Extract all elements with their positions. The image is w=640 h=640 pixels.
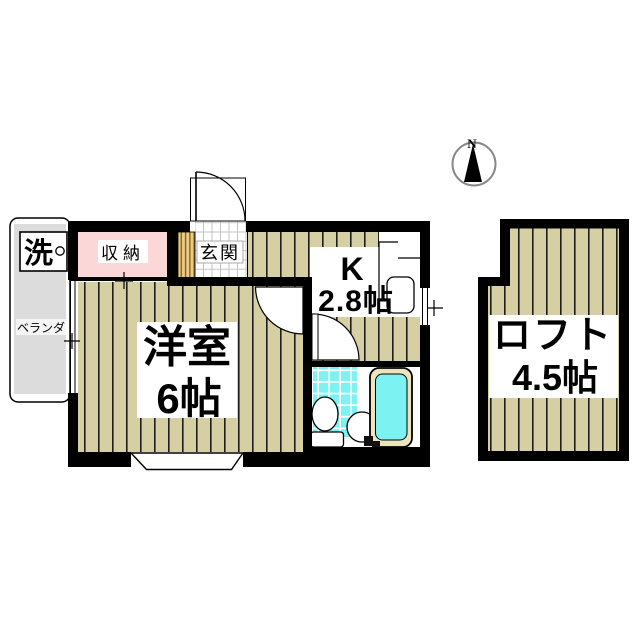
loft-label: ロフト	[493, 315, 613, 357]
bath-faucet-handle-icon	[372, 441, 380, 447]
main-room-size-label: 6帖	[156, 375, 221, 422]
closet-label: 収納	[101, 244, 145, 263]
veranda-label: ベランダ	[17, 320, 65, 335]
floorplan-page: 洋室 6帖 K 2.8帖 ロフト 4.5帖 収納 玄関 洗 ベランダ N	[0, 0, 640, 640]
shoe-cabinet	[178, 232, 195, 278]
kitchen-label: K	[340, 251, 363, 287]
toilet-tank-icon	[311, 432, 344, 447]
washer-faucet-icon	[56, 247, 64, 255]
main-room-label: 洋室	[143, 322, 231, 372]
bathroom	[311, 367, 421, 447]
toilet-icon	[312, 397, 338, 431]
kitchen-size-label: 2.8帖	[318, 285, 394, 318]
compass-north-label: N	[467, 136, 477, 151]
floorplan-drawing: 洋室 6帖 K 2.8帖 ロフト 4.5帖 収納 玄関 洗 ベランダ N	[0, 0, 640, 640]
loft-size-label: 4.5帖	[512, 357, 598, 398]
entrance-door	[191, 172, 246, 221]
washer-label: 洗	[24, 237, 53, 270]
bay-window-icon	[131, 453, 243, 470]
entrance-label: 玄関	[200, 243, 240, 263]
entrance-door-opening	[191, 178, 246, 221]
bathroom-door-leaf	[312, 314, 318, 360]
bath-faucet-icon	[364, 436, 373, 446]
bathtub-water	[376, 374, 408, 440]
